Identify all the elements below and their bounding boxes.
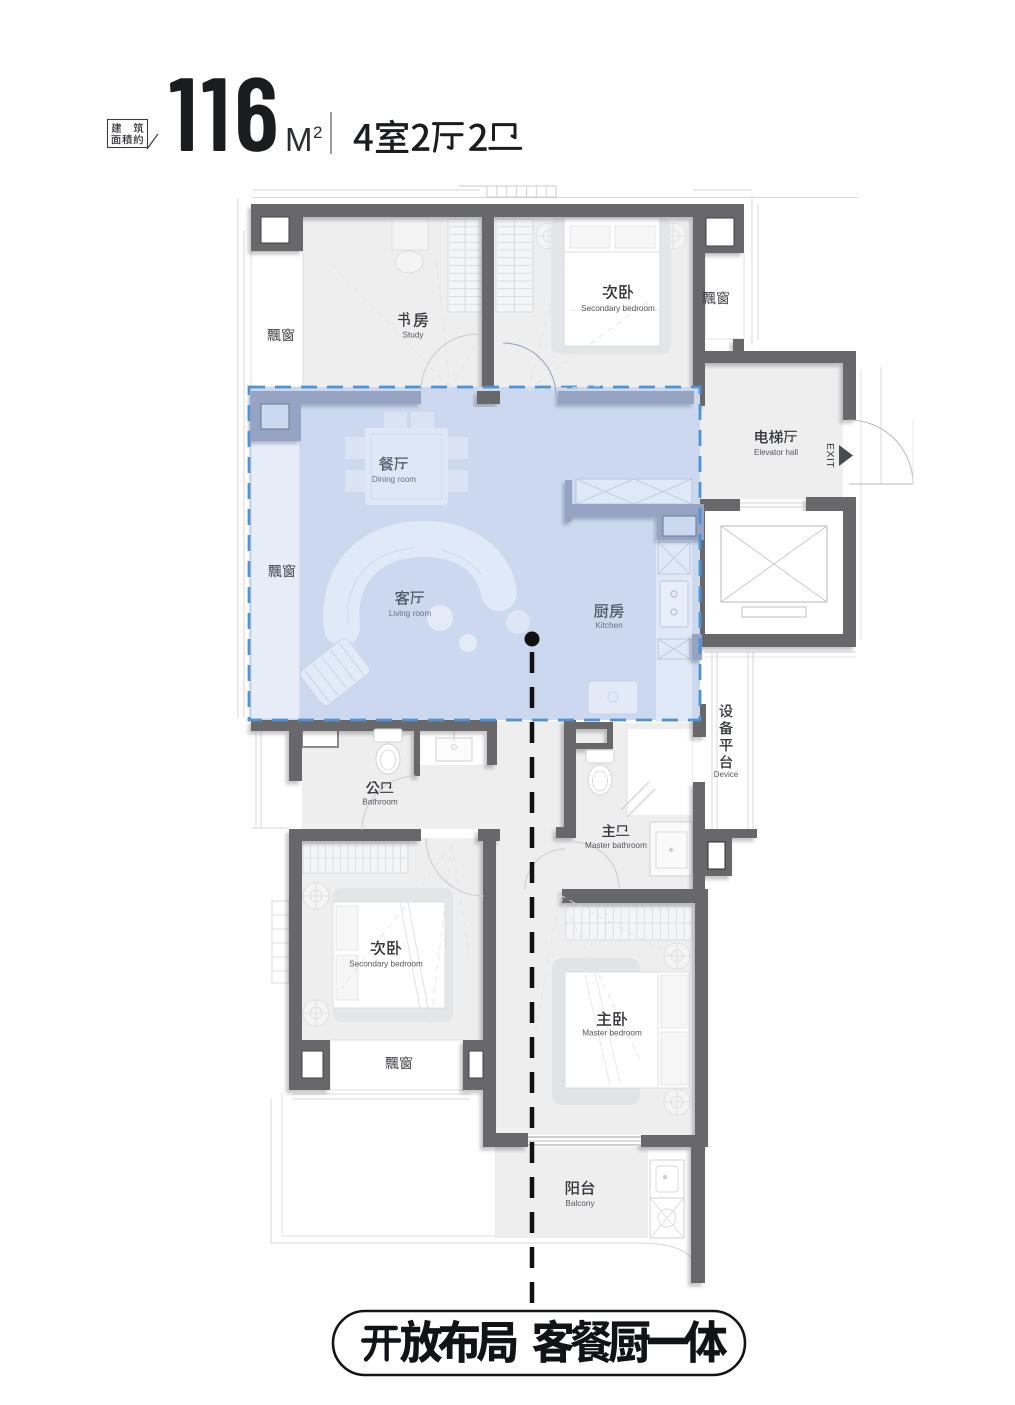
svg-text:Device: Device [714, 770, 739, 779]
svg-text:M: M [285, 121, 313, 158]
svg-text:Bathroom: Bathroom [362, 797, 398, 806]
svg-text:Dining room: Dining room [372, 475, 416, 484]
svg-text:Study: Study [403, 330, 425, 339]
svg-text:2: 2 [313, 123, 322, 142]
svg-text:Secondary bedroom: Secondary bedroom [581, 304, 655, 313]
svg-text:EXIT: EXIT [824, 443, 836, 468]
svg-text:Balcony: Balcony [565, 1199, 595, 1208]
svg-text:Kitchen: Kitchen [595, 621, 623, 630]
svg-text:Secondary bedroom: Secondary bedroom [349, 959, 423, 968]
svg-text:Master bathroom: Master bathroom [585, 841, 647, 850]
svg-text:Elevator hall: Elevator hall [754, 448, 798, 457]
svg-text:Living room: Living room [389, 609, 432, 618]
svg-text:Master bedroom: Master bedroom [582, 1028, 642, 1037]
